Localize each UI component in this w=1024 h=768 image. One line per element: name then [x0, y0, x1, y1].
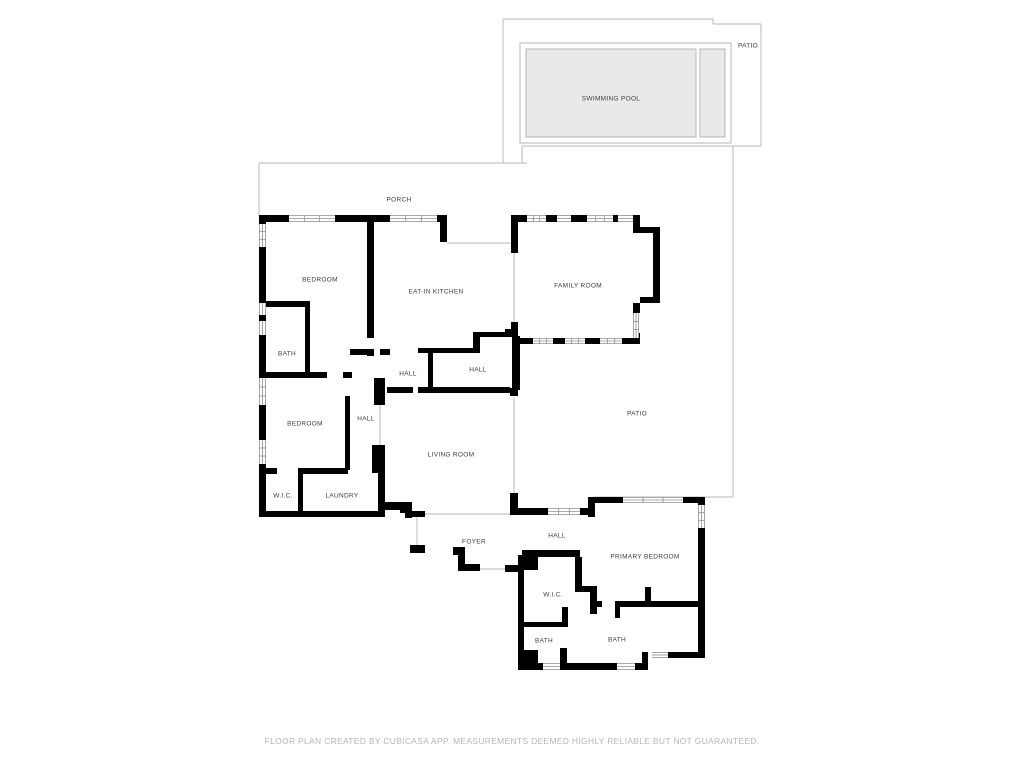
room-label-porch: PORCH — [387, 197, 412, 204]
room-label-eat-in-kitchen: EAT-IN KITCHEN — [408, 289, 463, 296]
room-label-laundry: LAUNDRY — [325, 493, 358, 500]
room-label-bath-primary-2: BATH — [608, 637, 626, 644]
room-label-patio-upper: PATIO — [738, 43, 758, 50]
room-label-patio-main: PATIO — [627, 411, 647, 418]
room-label-bedroom-1: BEDROOM — [302, 277, 338, 284]
room-label-foyer: FOYER — [462, 539, 486, 546]
room-label-primary-bedroom: PRIMARY BEDROOM — [610, 554, 679, 561]
floor-plan-page: PATIOSWIMMING POOLPORCHBEDROOMEAT-IN KIT… — [0, 0, 1024, 768]
room-label-wic-primary: W.I.C. — [543, 592, 563, 599]
room-label-bedroom-2: BEDROOM — [287, 421, 323, 428]
room-label-bath-1: BATH — [278, 351, 296, 358]
room-label-hall-2: HALL — [469, 367, 486, 374]
room-label-hall-3: HALL — [357, 416, 374, 423]
disclaimer-text: FLOOR PLAN CREATED BY CUBICASA APP. MEAS… — [265, 736, 760, 746]
room-label-bath-primary-1: BATH — [535, 638, 553, 645]
room-label-wic-1: W.I.C. — [273, 493, 293, 500]
room-label-hall-1: HALL — [399, 371, 416, 378]
room-label-swimming-pool: SWIMMING POOL — [582, 96, 640, 103]
room-label-hall-4: HALL — [548, 533, 565, 540]
room-label-living-room: LIVING ROOM — [428, 452, 475, 459]
room-label-family-room: FAMILY ROOM — [554, 283, 602, 290]
room-labels: PATIOSWIMMING POOLPORCHBEDROOMEAT-IN KIT… — [0, 0, 1024, 768]
